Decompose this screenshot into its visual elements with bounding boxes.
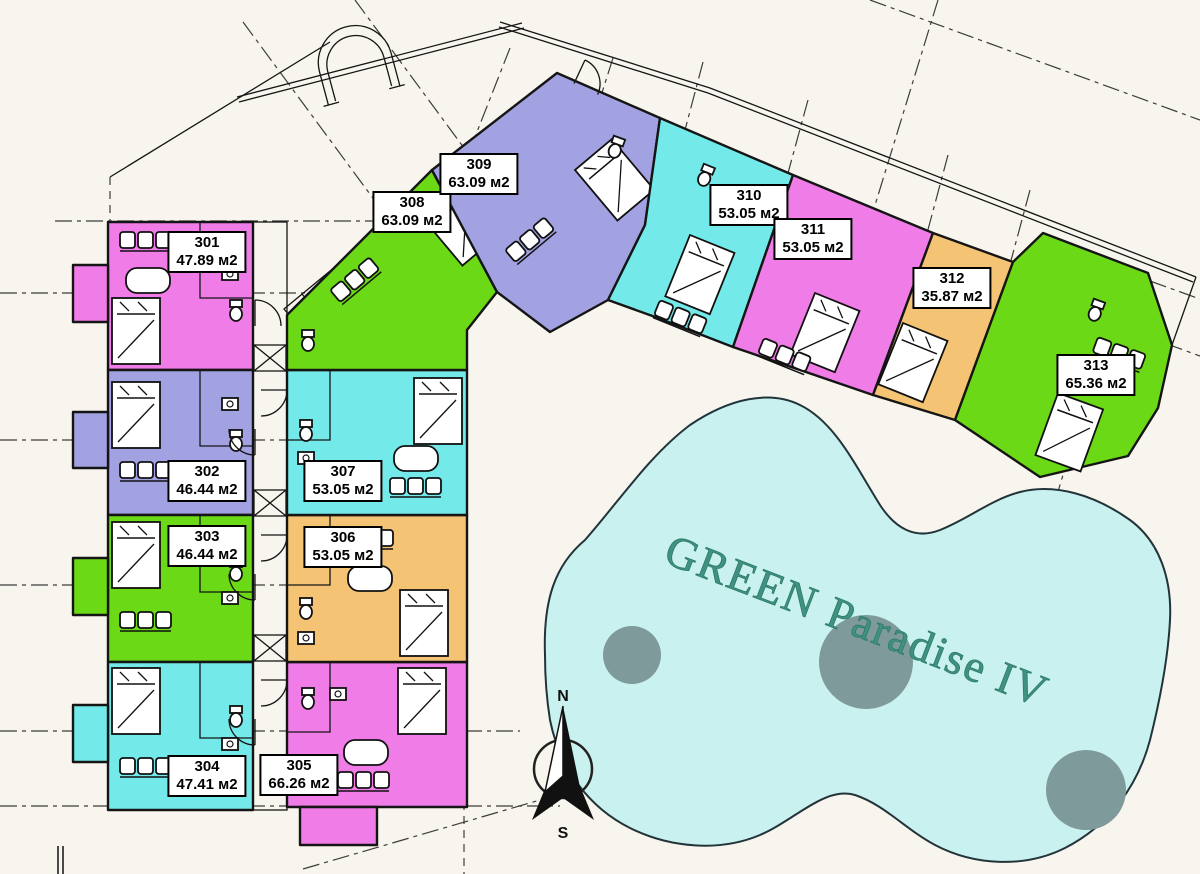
compass-north-label: N xyxy=(557,688,569,705)
floor-plan: GREEN Paradise IV N S 30147.89 м2 30246.… xyxy=(0,0,1200,874)
unit-label-313[interactable]: 31365.36 м2 xyxy=(1056,354,1135,396)
pool-island xyxy=(603,626,661,684)
unit-label-307[interactable]: 30753.05 м2 xyxy=(303,460,382,502)
unit-label-312[interactable]: 31235.87 м2 xyxy=(912,267,991,309)
unit-label-306[interactable]: 30653.05 м2 xyxy=(303,526,382,568)
balcony-305 xyxy=(300,807,377,845)
compass-south-label: S xyxy=(558,825,569,842)
unit-label-301[interactable]: 30147.89 м2 xyxy=(167,231,246,273)
balcony-304 xyxy=(73,705,108,762)
unit-label-302[interactable]: 30246.44 м2 xyxy=(167,460,246,502)
unit-label-311[interactable]: 31153.05 м2 xyxy=(773,218,852,260)
unit-label-304[interactable]: 30447.41 м2 xyxy=(167,755,246,797)
balcony-302 xyxy=(73,412,108,468)
pool-island xyxy=(1046,750,1126,830)
floor-plan-svg: GREEN Paradise IV N S xyxy=(0,0,1200,874)
unit-label-309[interactable]: 30963.09 м2 xyxy=(439,153,518,195)
balcony-301 xyxy=(73,265,108,322)
balcony-303 xyxy=(73,558,108,615)
unit-label-303[interactable]: 30346.44 м2 xyxy=(167,525,246,567)
unit-label-305[interactable]: 30566.26 м2 xyxy=(259,754,338,796)
unit-label-308[interactable]: 30863.09 м2 xyxy=(372,191,451,233)
